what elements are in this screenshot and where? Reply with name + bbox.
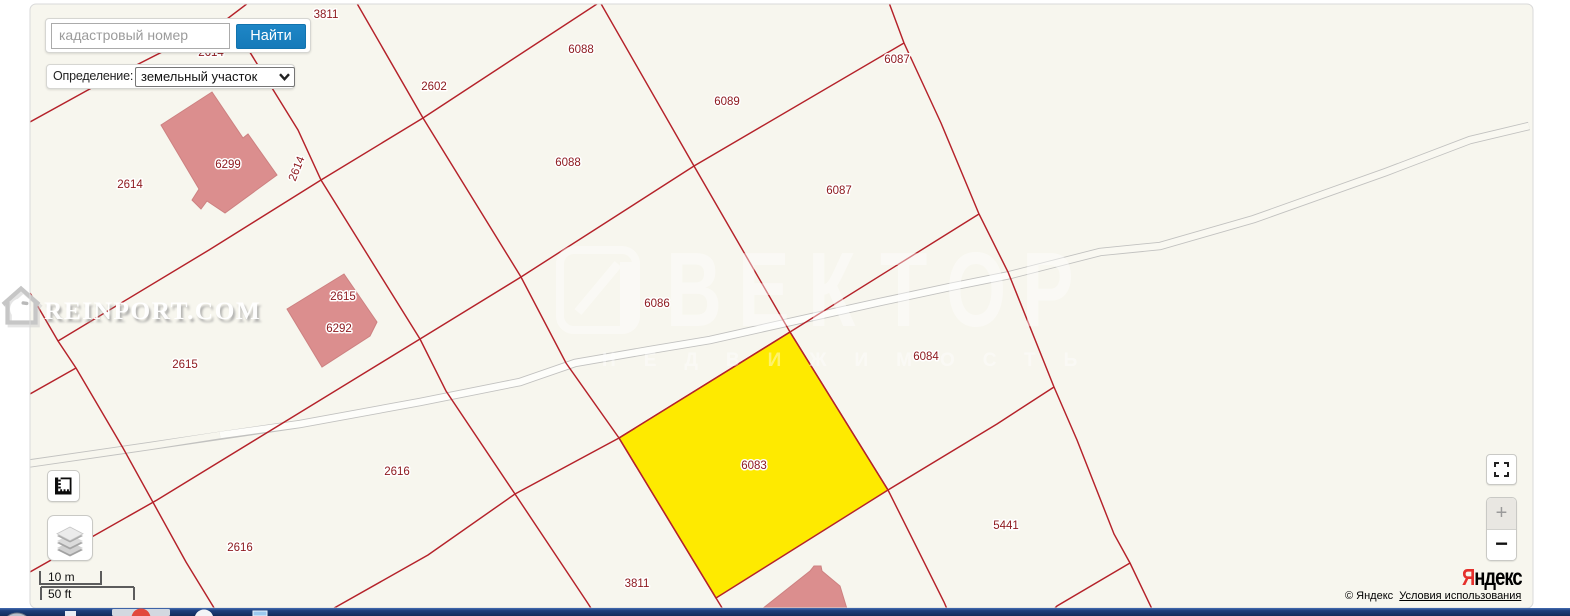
svg-text:2615: 2615	[172, 359, 198, 371]
svg-text:НЕДВИЖИМОСТЬ: НЕДВИЖИМОСТЬ	[602, 350, 1105, 371]
svg-text:2616: 2616	[227, 542, 253, 554]
svg-text:2614: 2614	[117, 179, 143, 191]
svg-text:6088: 6088	[555, 157, 581, 169]
svg-text:2616: 2616	[384, 466, 410, 478]
svg-text:2602: 2602	[421, 81, 447, 93]
svg-text:10 m: 10 m	[48, 570, 75, 584]
svg-text:Т: Т	[880, 230, 927, 349]
svg-text:К: К	[808, 230, 856, 349]
svg-text:6089: 6089	[714, 96, 740, 108]
svg-text:В: В	[666, 230, 722, 349]
svg-text:6087: 6087	[884, 54, 910, 66]
svg-text:5441: 5441	[993, 520, 1019, 532]
svg-text:6299: 6299	[215, 159, 241, 171]
svg-text:Р: Р	[1022, 230, 1074, 349]
svg-text:50 ft: 50 ft	[48, 587, 72, 601]
svg-text:3811: 3811	[314, 9, 339, 21]
svg-text:6292: 6292	[326, 323, 352, 335]
svg-text:6083: 6083	[741, 460, 767, 472]
svg-text:6088: 6088	[568, 44, 594, 56]
svg-text:Е: Е	[738, 230, 790, 349]
svg-text:2615: 2615	[330, 291, 356, 303]
svg-text:6087: 6087	[826, 185, 852, 197]
svg-text:3811: 3811	[625, 578, 650, 590]
svg-text:О: О	[946, 230, 1006, 349]
